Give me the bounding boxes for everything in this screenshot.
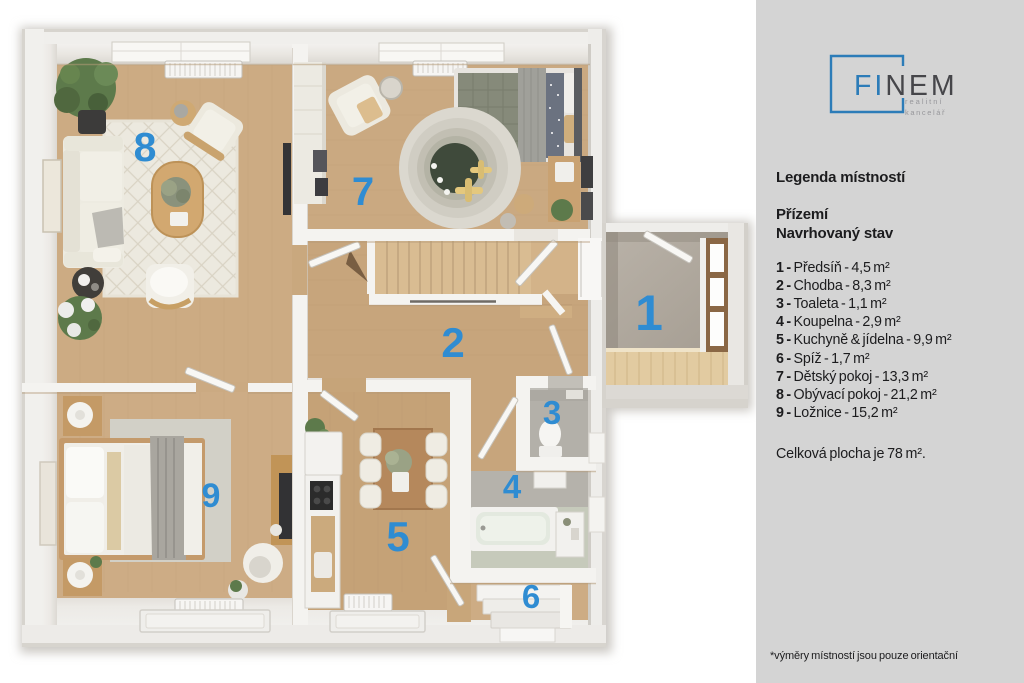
svg-text:9 - Ložnice - 15,2 m²: 9 - Ložnice - 15,2 m² bbox=[776, 405, 898, 421]
svg-text:Navrhovaný stav: Navrhovaný stav bbox=[776, 225, 894, 242]
svg-text:Legenda místností: Legenda místností bbox=[776, 169, 906, 186]
svg-text:5 - Kuchyně & jídelna - 9,9 m²: 5 - Kuchyně & jídelna - 9,9 m² bbox=[776, 332, 952, 348]
svg-text:realitní: realitní bbox=[905, 97, 944, 106]
svg-text:4 - Koupelna - 2,9 m²: 4 - Koupelna - 2,9 m² bbox=[776, 314, 901, 330]
svg-text:Celková plocha je 78 m².: Celková plocha je 78 m². bbox=[776, 446, 926, 462]
svg-text:8: 8 bbox=[134, 124, 157, 170]
svg-text:2 - Chodba - 8,3 m²: 2 - Chodba - 8,3 m² bbox=[776, 278, 891, 294]
svg-text:7 - Dětský pokoj - 13,3 m²: 7 - Dětský pokoj - 13,3 m² bbox=[776, 369, 928, 385]
svg-text:3 - Toaleta - 1,1 m²: 3 - Toaleta - 1,1 m² bbox=[776, 296, 887, 312]
svg-text:2: 2 bbox=[441, 319, 464, 366]
svg-text:5: 5 bbox=[386, 513, 409, 560]
svg-text:*výměry místností jsou pouze o: *výměry místností jsou pouze orientační bbox=[770, 650, 958, 662]
svg-text:1: 1 bbox=[635, 285, 663, 341]
svg-text:4: 4 bbox=[503, 468, 522, 505]
svg-text:6: 6 bbox=[522, 578, 540, 615]
svg-text:7: 7 bbox=[352, 170, 374, 214]
svg-text:1 - Předsíň - 4,5 m²: 1 - Předsíň - 4,5 m² bbox=[776, 260, 890, 276]
svg-text:kancelář: kancelář bbox=[905, 108, 946, 117]
svg-text:Přízemí: Přízemí bbox=[776, 206, 829, 223]
svg-text:6 - Spíž - 1,7 m²: 6 - Spíž - 1,7 m² bbox=[776, 351, 870, 367]
svg-text:3: 3 bbox=[543, 394, 561, 431]
svg-text:9: 9 bbox=[202, 477, 221, 515]
svg-text:8 - Obývací pokoj - 21,2 m²: 8 - Obývací pokoj - 21,2 m² bbox=[776, 387, 937, 403]
